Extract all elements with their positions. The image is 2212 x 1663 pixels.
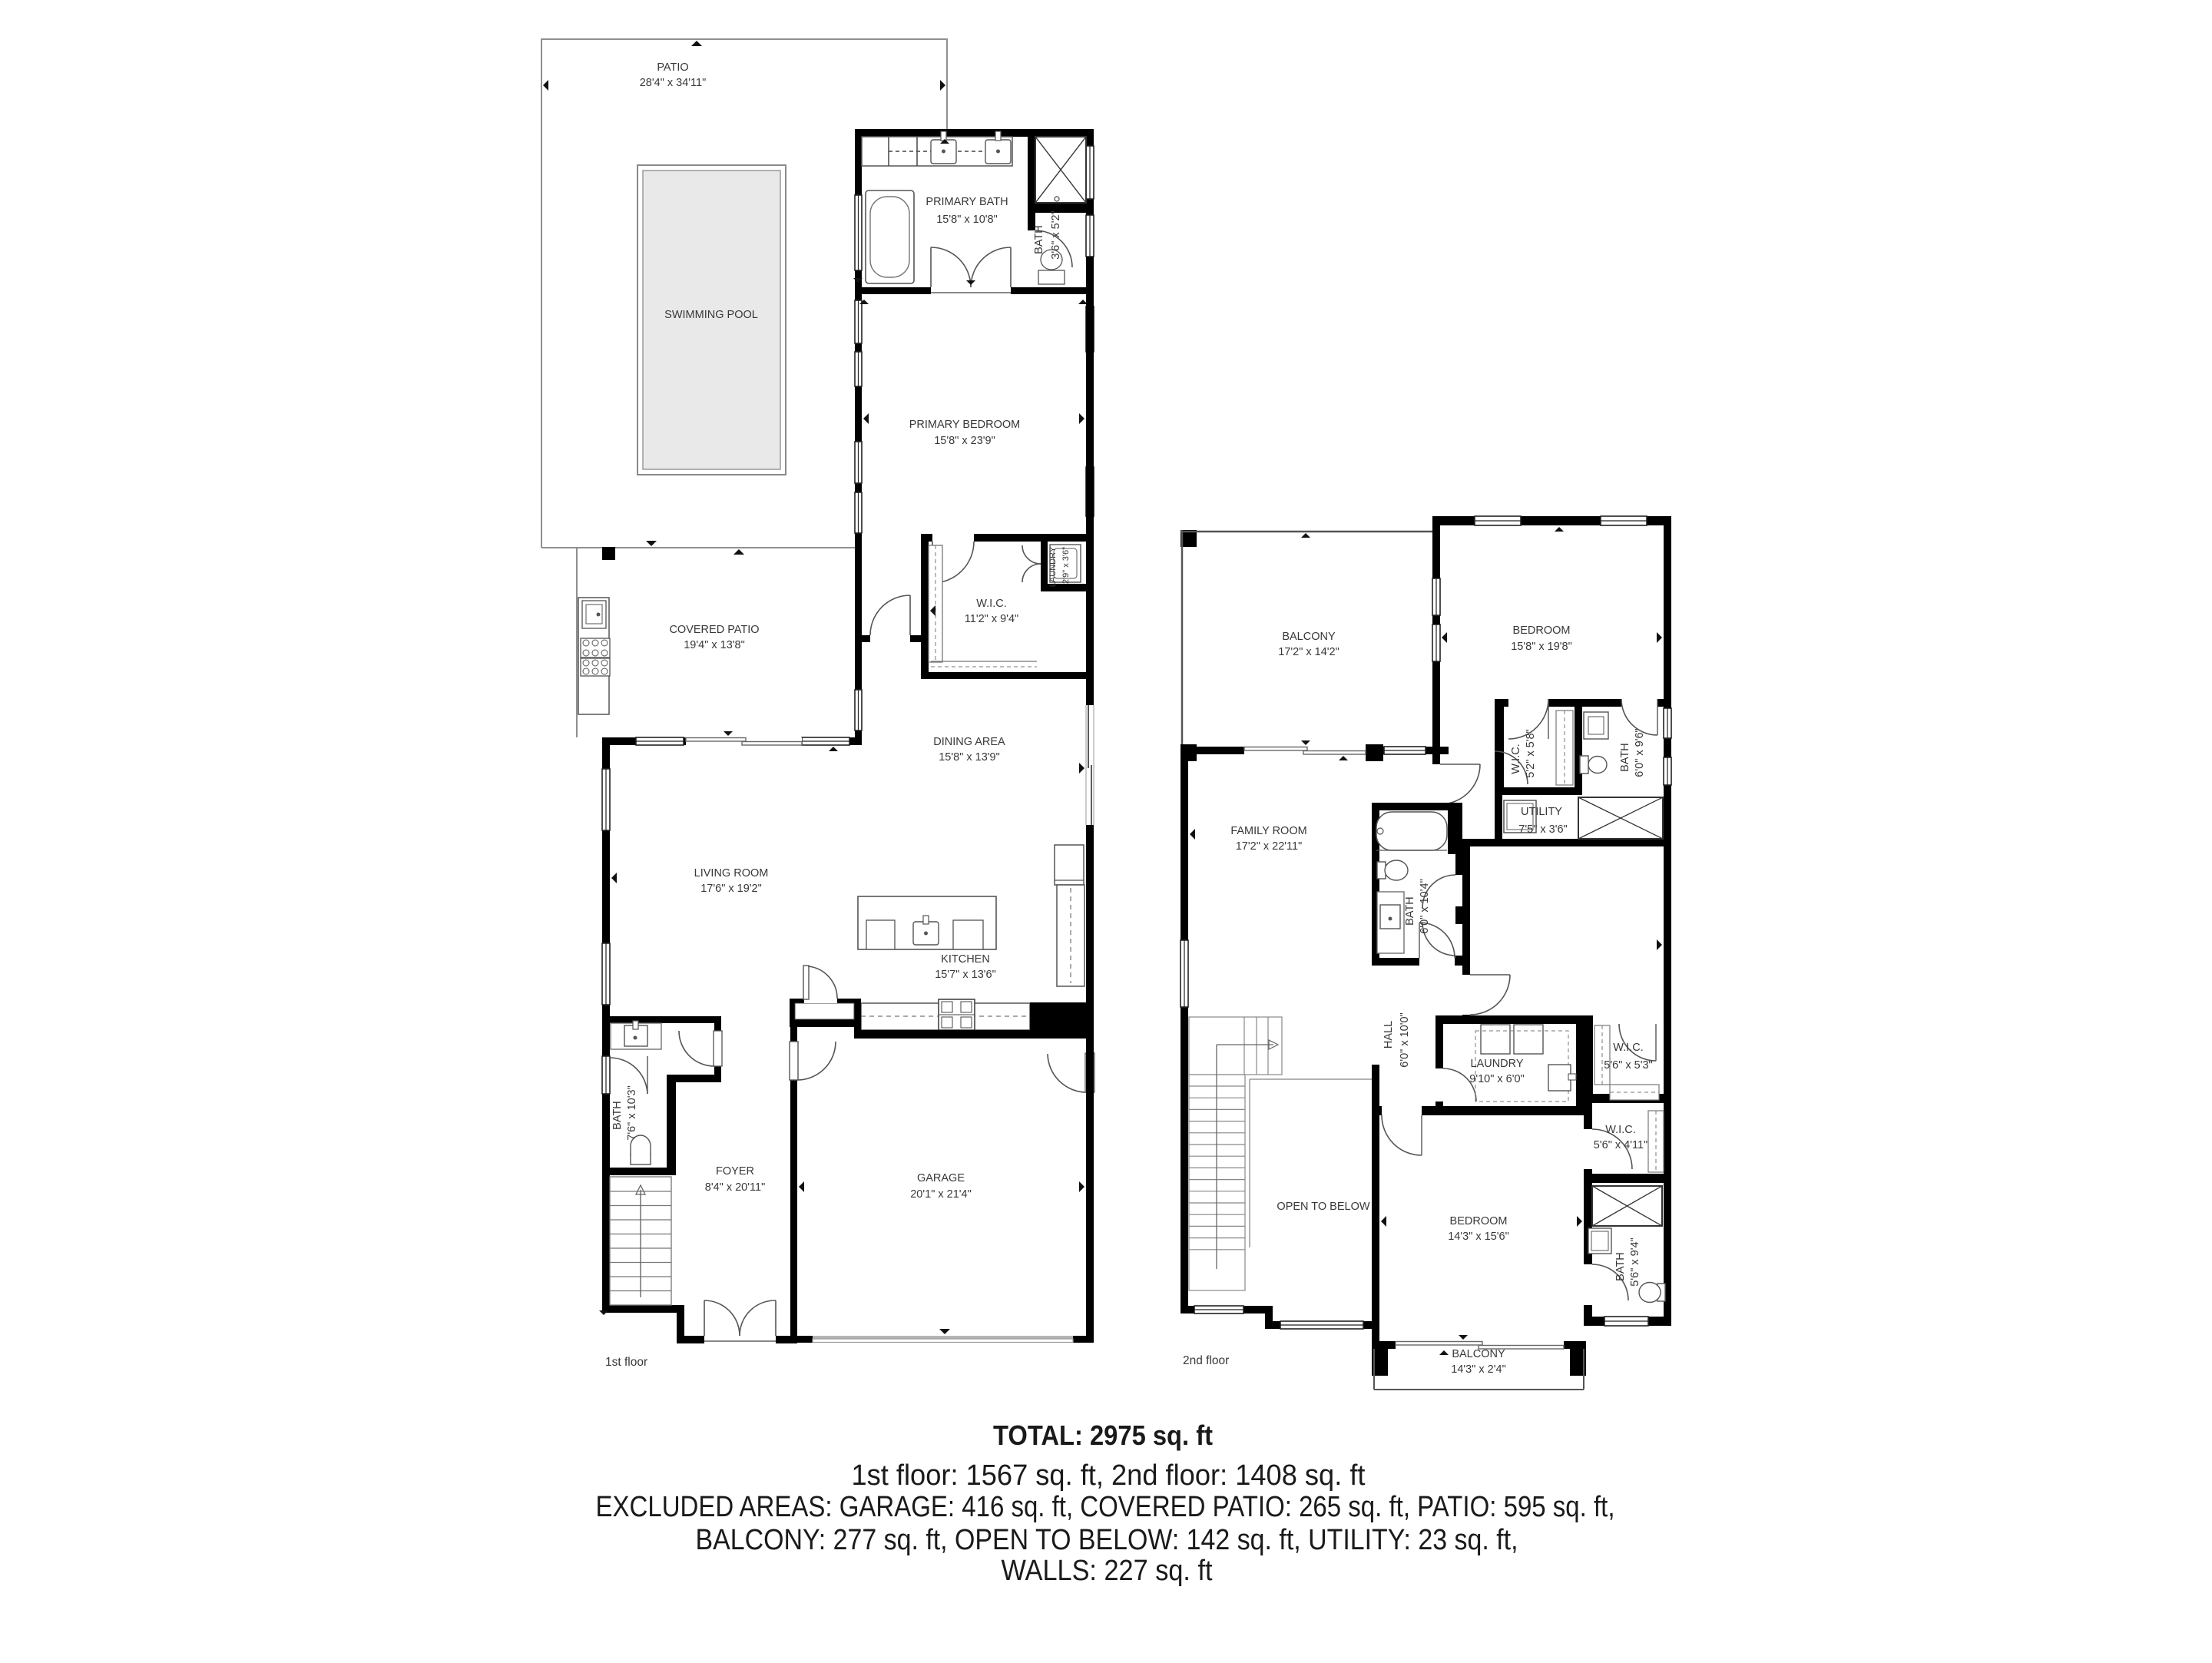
svg-text:6'0" x 9'6": 6'0" x 9'6" [1634,728,1646,777]
svg-text:W.I.C.: W.I.C. [1605,1124,1635,1136]
svg-text:PRIMARY BATH: PRIMARY BATH [926,196,1008,208]
svg-text:7'5" x 3'6": 7'5" x 3'6" [1518,823,1567,836]
svg-text:5'6" x 5'3": 5'6" x 5'3" [1604,1059,1652,1072]
svg-text:OPEN TO BELOW: OPEN TO BELOW [1277,1201,1369,1213]
svg-text:EXCLUDED AREAS: GARAGE: 416 sq: EXCLUDED AREAS: GARAGE: 416 sq. ft, COVE… [596,1491,1615,1523]
svg-text:2nd floor: 2nd floor [1183,1354,1229,1367]
svg-text:LAUNDRY: LAUNDRY [1048,546,1058,587]
svg-text:15'8" x 19'8": 15'8" x 19'8" [1511,641,1572,653]
svg-text:2'9" x 3'6": 2'9" x 3'6" [1061,547,1071,584]
svg-text:PATIO: PATIO [657,61,688,74]
svg-text:BALCONY: BALCONY [1282,631,1336,643]
svg-text:17'2" x 14'2": 17'2" x 14'2" [1278,646,1339,658]
svg-text:DINING AREA: DINING AREA [933,736,1005,748]
svg-text:28'4" x 34'11": 28'4" x 34'11" [640,77,707,89]
svg-text:7'6" x 10'3": 7'6" x 10'3" [626,1085,638,1140]
svg-text:9'10" x 6'0": 9'10" x 6'0" [1469,1073,1524,1085]
svg-text:LIVING ROOM: LIVING ROOM [694,867,769,880]
svg-text:GARAGE: GARAGE [917,1172,965,1184]
svg-text:6'0" x 10'4": 6'0" x 10'4" [1419,879,1431,933]
svg-text:19'4" x 13'8": 19'4" x 13'8" [684,639,745,651]
svg-text:BALCONY: BALCONY [1452,1348,1505,1360]
svg-text:LAUNDRY: LAUNDRY [1470,1058,1523,1070]
svg-text:14'3" x 2'4": 14'3" x 2'4" [1451,1363,1505,1376]
svg-text:HALL: HALL [1382,1021,1395,1048]
svg-text:5'6" x 4'11": 5'6" x 4'11" [1594,1139,1647,1151]
svg-text:5'2" x 5'8": 5'2" x 5'8" [1525,729,1537,777]
svg-text:COVERED PATIO: COVERED PATIO [669,624,759,636]
svg-text:BATH: BATH [1033,225,1045,254]
svg-text:BATH: BATH [1614,1252,1627,1281]
svg-text:6'0" x 10'0": 6'0" x 10'0" [1399,1012,1411,1067]
svg-text:SWIMMING POOL: SWIMMING POOL [664,309,758,321]
svg-text:3'6" x 5'2": 3'6" x 5'2" [1050,210,1062,259]
svg-text:BATH: BATH [611,1101,624,1130]
svg-text:15'8" x 23'9": 15'8" x 23'9" [934,435,995,447]
svg-text:17'6" x 19'2": 17'6" x 19'2" [700,883,762,895]
svg-text:15'7" x 13'6": 15'7" x 13'6" [935,969,996,981]
svg-text:20'1" x 21'4": 20'1" x 21'4" [910,1188,972,1201]
svg-text:1st floor: 1567 sq. ft, 2nd fl: 1st floor: 1567 sq. ft, 2nd floor: 1408 … [852,1459,1366,1492]
svg-text:8'4" x 20'11": 8'4" x 20'11" [705,1181,765,1194]
svg-text:WALLS: 227 sq. ft: WALLS: 227 sq. ft [1002,1555,1213,1587]
svg-text:BALCONY: 277 sq. ft, OPEN TO B: BALCONY: 277 sq. ft, OPEN TO BELOW: 142 … [696,1524,1518,1556]
svg-text:BEDROOM: BEDROOM [1450,1215,1508,1227]
svg-text:W.I.C.: W.I.C. [1510,744,1522,774]
svg-text:FAMILY ROOM: FAMILY ROOM [1230,825,1306,837]
svg-text:1st floor: 1st floor [605,1356,647,1369]
svg-text:BATH: BATH [1404,896,1416,926]
svg-text:UTILITY: UTILITY [1521,806,1562,818]
svg-text:11'2" x 9'4": 11'2" x 9'4" [965,613,1018,625]
svg-text:KITCHEN: KITCHEN [941,953,990,966]
svg-text:TOTAL: 2975 sq. ft: TOTAL: 2975 sq. ft [993,1420,1213,1451]
svg-text:17'2" x 22'11": 17'2" x 22'11" [1236,840,1303,853]
svg-text:PRIMARY BEDROOM: PRIMARY BEDROOM [909,419,1021,431]
svg-text:W.I.C.: W.I.C. [976,598,1006,610]
svg-text:W.I.C.: W.I.C. [1613,1042,1643,1054]
svg-text:FOYER: FOYER [716,1165,754,1178]
svg-text:14'3" x 15'6": 14'3" x 15'6" [1448,1231,1509,1243]
svg-text:15'8" x 13'9": 15'8" x 13'9" [939,751,1000,764]
svg-text:5'6" x 9'4": 5'6" x 9'4" [1629,1237,1641,1286]
svg-text:BEDROOM: BEDROOM [1513,624,1571,637]
svg-text:BATH: BATH [1619,743,1631,772]
svg-text:15'8" x 10'8": 15'8" x 10'8" [936,214,998,226]
